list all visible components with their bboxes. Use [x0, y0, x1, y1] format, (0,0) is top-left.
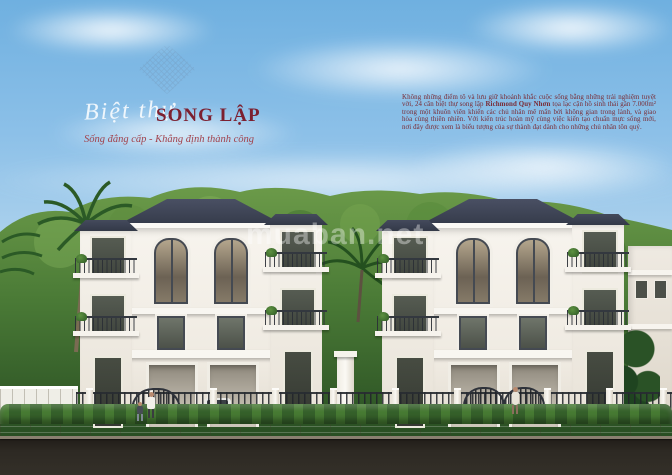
- site-watermark: muaban.net: [246, 218, 424, 252]
- hedge-row: [0, 404, 672, 424]
- person-legs: [136, 414, 144, 421]
- balcony: [377, 258, 439, 280]
- person-body: [137, 406, 143, 414]
- cloud: [6, 6, 216, 54]
- cornice: [124, 308, 278, 314]
- window: [157, 316, 185, 350]
- hip-roof: [418, 196, 588, 226]
- arched-window: [456, 238, 490, 304]
- curb: [0, 436, 672, 439]
- pedestrian-adult: [146, 392, 156, 418]
- balcony-slab: [73, 273, 139, 278]
- window: [459, 316, 487, 350]
- balcony-slab: [565, 325, 631, 330]
- cornice: [423, 350, 583, 358]
- pedestrian-child: [136, 402, 144, 421]
- balcony: [265, 310, 327, 332]
- balcony-slab: [375, 331, 441, 336]
- person-body: [512, 392, 519, 405]
- arched-window: [154, 238, 188, 304]
- window: [635, 280, 648, 299]
- asphalt-road: [0, 438, 672, 475]
- balcony-slab: [263, 325, 329, 330]
- balcony: [567, 252, 629, 274]
- project-name: Richmond Quy Nhơn: [485, 101, 550, 108]
- cornice: [628, 270, 672, 275]
- balcony-plant: [378, 254, 389, 263]
- description-paragraph: Không những điểm tô và lưu giữ khoảnh kh…: [402, 94, 656, 132]
- balcony-plant: [568, 248, 579, 257]
- balcony-slab: [73, 331, 139, 336]
- window: [217, 316, 245, 350]
- balcony-slab: [565, 267, 631, 272]
- balcony-slab: [375, 273, 441, 278]
- balcony: [75, 258, 137, 280]
- balcony-plant: [568, 306, 579, 315]
- balcony-plant: [76, 254, 87, 263]
- balcony: [265, 252, 327, 274]
- person-legs: [510, 405, 520, 414]
- wing-roof: [566, 212, 630, 225]
- arched-window: [516, 238, 550, 304]
- window: [519, 316, 547, 350]
- balcony-plant: [378, 312, 389, 321]
- balcony: [75, 316, 137, 338]
- cornice: [628, 324, 672, 329]
- poster: Biệt thự SONG LẬP Sống đẳng cấp - Khẳng …: [0, 0, 672, 475]
- balcony-slab: [263, 267, 329, 272]
- cornice: [426, 308, 580, 314]
- arched-window: [214, 238, 248, 304]
- pedestrian-woman: [510, 387, 520, 414]
- balcony: [377, 316, 439, 338]
- balcony-plant: [76, 312, 87, 321]
- balcony-plant: [266, 306, 277, 315]
- cloud: [466, 2, 672, 54]
- page-title: SONG LẬP: [156, 105, 261, 127]
- person-legs: [146, 409, 156, 418]
- cornice: [121, 350, 281, 358]
- tagline: Sống đẳng cấp - Khẳng định thành công: [84, 134, 284, 145]
- balcony: [567, 310, 629, 332]
- window: [654, 280, 667, 299]
- person-body: [147, 397, 155, 409]
